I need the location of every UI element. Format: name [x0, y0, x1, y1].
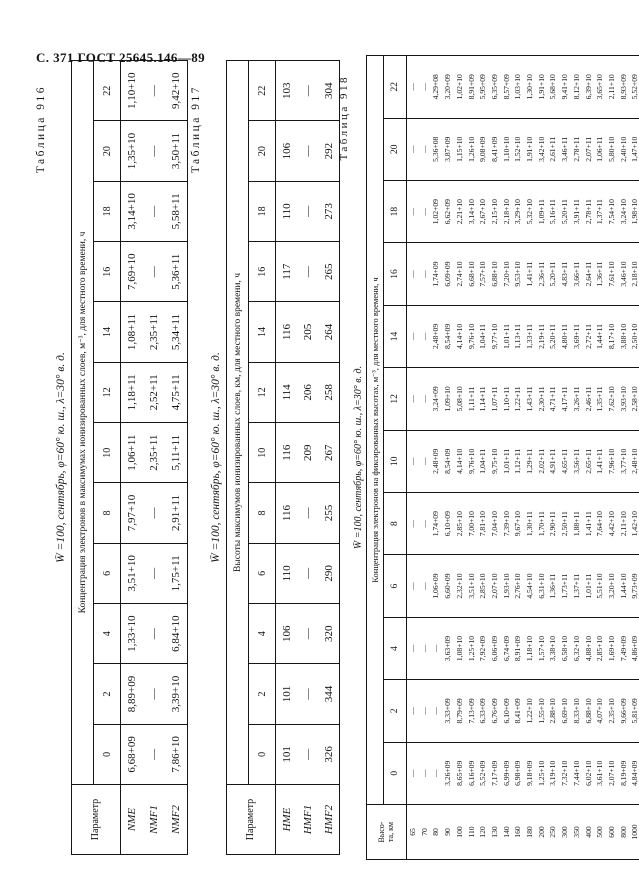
value-cell: —	[419, 617, 431, 679]
value-cell: 3,61+10	[594, 742, 606, 804]
value-cell: 2,30+11	[536, 368, 548, 430]
value-cell: 8,54+09	[442, 430, 454, 492]
value-cell: 6,06+09	[489, 617, 501, 679]
value-cell: 9,67+10	[512, 492, 524, 554]
value-cell: 7,86+10	[165, 724, 188, 784]
time-header-cell: 18	[249, 181, 276, 241]
height-label-cell: 140	[501, 805, 513, 860]
value-cell: —	[407, 56, 419, 119]
value-cell: 9,75+10	[489, 430, 501, 492]
value-cell: 326	[318, 724, 340, 784]
value-cell: 2,58+10	[629, 368, 639, 430]
time-header-cell: 20	[94, 121, 121, 181]
value-cell: —	[143, 121, 165, 181]
value-cell: 1,75+11	[165, 543, 188, 603]
value-cell: 1,22+11	[512, 368, 524, 430]
time-header-cell: 10	[384, 430, 407, 492]
value-cell: 1,37+11	[571, 555, 583, 617]
value-cell: 7,39+10	[501, 492, 513, 554]
value-cell: 3,69+11	[571, 305, 583, 367]
value-cell: 1,13+11	[512, 305, 524, 367]
value-cell: 1,10+11	[501, 368, 513, 430]
value-cell: 5,34+11	[165, 302, 188, 362]
time-header-cell: 6	[249, 543, 276, 603]
value-cell: 2,74+10	[454, 243, 466, 305]
table-row: 1606,98+098,41+098,91+092,76+109,67+101,…	[512, 56, 524, 860]
time-header-cell: 2	[384, 680, 407, 742]
row-label-cell: HME	[276, 785, 298, 855]
value-cell: 205	[297, 302, 318, 362]
time-header-cell: 6	[94, 543, 121, 603]
value-cell: 4,91+11	[547, 430, 559, 492]
table-row: 70————————————	[419, 56, 431, 860]
value-cell: 2,85+10	[594, 617, 606, 679]
value-cell: 6,84+10	[165, 604, 188, 664]
time-header-cell: 20	[384, 118, 407, 180]
value-cell: 1,36+11	[547, 555, 559, 617]
value-cell: 2,78+11	[583, 180, 595, 242]
value-cell: 9,08+09	[477, 118, 489, 180]
value-cell: 2,61+11	[547, 118, 559, 180]
height-label-cell: 130	[489, 805, 501, 860]
row-label-cell: HMF2	[318, 785, 340, 855]
value-cell: 1,30+10	[524, 56, 536, 119]
value-cell: 5,68+10	[547, 56, 559, 119]
value-cell: —	[297, 61, 318, 121]
value-cell: 1,29+11	[524, 430, 536, 492]
table-row: 6002,07+102,35+101,69+103,20+104,42+107,…	[606, 56, 618, 860]
value-cell: 1,74+09	[430, 243, 442, 305]
value-cell: 117	[276, 242, 298, 302]
value-cell: 8,93+09	[618, 56, 630, 119]
value-cell: 3,87+09	[442, 118, 454, 180]
value-cell: 6,99+09	[501, 742, 513, 804]
value-cell: 8,41+09	[489, 118, 501, 180]
table-row: 3507,44+108,33+106,32+101,37+111,88+113,…	[571, 56, 583, 860]
value-cell: 2,18+10	[629, 243, 639, 305]
value-cell: 8,54+09	[442, 305, 454, 367]
table-row: 1106,16+097,13+091,25+103,51+107,00+109,…	[466, 56, 478, 860]
value-cell: 3,66+11	[571, 243, 583, 305]
height-label-cell: 80	[430, 805, 442, 860]
value-cell: 4,83+11	[559, 243, 571, 305]
value-cell: 1,18+11	[121, 362, 144, 422]
value-cell: 8,65+09	[454, 742, 466, 804]
time-header-cell: 8	[94, 483, 121, 543]
time-header-cell: 18	[94, 181, 121, 241]
value-cell: 3,26+09	[442, 742, 454, 804]
height-label-cell: 180	[524, 805, 536, 860]
table-row: NMF27,86+103,39+106,84+101,75+112,91+115…	[165, 61, 188, 855]
value-cell: 1,06+09	[430, 555, 442, 617]
time-header-cell: 12	[249, 362, 276, 422]
value-cell: 1,57+10	[536, 617, 548, 679]
value-cell: 8,79+09	[454, 680, 466, 742]
table-row: HMF1—————209206205————	[297, 61, 318, 855]
height-label-cell: 400	[583, 805, 595, 860]
value-cell: 2,15+10	[489, 180, 501, 242]
value-cell: —	[407, 742, 419, 804]
value-cell: 2,07+10	[606, 742, 618, 804]
value-cell: 9,42+10	[165, 61, 188, 121]
value-cell: —	[143, 604, 165, 664]
value-cell: —	[143, 724, 165, 784]
table-row: HMF2326344320290255267258264265273292304	[318, 61, 340, 855]
value-cell: 1,25+10	[466, 617, 478, 679]
value-cell: 1,35+11	[594, 368, 606, 430]
value-cell: 7,69+10	[121, 242, 144, 302]
value-cell: 5,20+11	[547, 305, 559, 367]
time-header-cell: 16	[94, 242, 121, 302]
value-cell: 2,67+10	[477, 180, 489, 242]
value-cell: 9,41+10	[559, 56, 571, 119]
value-cell: 3,20+09	[442, 56, 454, 119]
value-cell: 2,91+11	[165, 483, 188, 543]
value-cell: —	[297, 724, 318, 784]
time-header-cell: 22	[384, 56, 407, 119]
value-cell: 1,01+11	[501, 305, 513, 367]
value-cell: 2,65+11	[583, 430, 595, 492]
stub-header-cell: Параметр	[227, 785, 276, 855]
value-cell: 5,11+11	[165, 423, 188, 483]
table-caption: Таблица 918	[338, 55, 353, 860]
value-cell: 2,18+10	[501, 180, 513, 242]
value-cell: 1,03+10	[512, 56, 524, 119]
table-row: 2503,19+102,88+103,38+101,36+112,90+114,…	[547, 56, 559, 860]
table-title: W̄ =100, сентябрь, φ=60° ю. ш., λ=30° в.…	[55, 60, 71, 855]
value-cell: 4,80+11	[559, 305, 571, 367]
value-cell: 114	[276, 362, 298, 422]
value-cell: 1,91+10	[536, 56, 548, 119]
value-cell: 2,35+10	[606, 680, 618, 742]
value-cell: 9,66+09	[618, 680, 630, 742]
table-918-band: Таблица 918W̄ =100, сентябрь, φ=60° ю. ш…	[338, 55, 639, 860]
value-cell: 1,01+11	[583, 555, 595, 617]
value-cell: —	[297, 664, 318, 724]
value-cell: 1,36+11	[594, 243, 606, 305]
value-cell: 7,97+10	[121, 483, 144, 543]
height-label-cell: 110	[466, 805, 478, 860]
value-cell: 3,93+10	[618, 368, 630, 430]
value-cell: 1,07+11	[489, 368, 501, 430]
value-cell: —	[407, 368, 419, 430]
value-cell: 4,07+10	[594, 680, 606, 742]
value-cell: 1,12+11	[512, 430, 524, 492]
value-cell: 1,10+10	[501, 118, 513, 180]
time-header-cell: 8	[249, 483, 276, 543]
table-916-band: Таблица 916W̄ =100, сентябрь, φ=60° ю. ш…	[35, 60, 187, 855]
value-cell: 1,09+10	[442, 368, 454, 430]
value-cell: 2,36+11	[536, 243, 548, 305]
value-cell: 7,96+10	[606, 430, 618, 492]
value-cell: 1,22+10	[524, 680, 536, 742]
value-cell: 1,35+10	[121, 121, 144, 181]
value-cell: 258	[318, 362, 340, 422]
value-cell: 1,10+10	[121, 61, 144, 121]
value-cell: 4,88+10	[583, 617, 595, 679]
value-cell: 8,57+09	[501, 56, 513, 119]
time-header-cell: 0	[249, 724, 276, 784]
height-label-cell: 600	[606, 805, 618, 860]
value-cell: 3,38+10	[547, 617, 559, 679]
value-cell: 1,41+11	[583, 492, 595, 554]
table-row: 80———1,06+091,74+092,48+093,24+092,48+09…	[430, 56, 442, 860]
value-cell: 8,41+09	[512, 680, 524, 742]
value-cell: 265	[318, 242, 340, 302]
value-cell: 3,77+10	[618, 430, 630, 492]
value-cell: 6,68+10	[466, 243, 478, 305]
value-cell: 1,91+10	[524, 118, 536, 180]
value-cell: 2,48+09	[430, 305, 442, 367]
value-cell: 5,08+10	[454, 368, 466, 430]
value-cell: 7,49+09	[618, 617, 630, 679]
value-cell: 4,71+11	[547, 368, 559, 430]
value-cell: 1,02+09	[430, 180, 442, 242]
value-cell: 9,77+10	[489, 305, 501, 367]
value-cell: —	[430, 617, 442, 679]
time-header-cell: 14	[249, 302, 276, 362]
value-cell: 6,02+10	[583, 742, 595, 804]
value-cell: —	[419, 680, 431, 742]
value-cell: 2,50+11	[559, 492, 571, 554]
value-cell: 1,25+10	[536, 742, 548, 804]
value-cell: 103	[276, 61, 298, 121]
value-cell: 267	[318, 423, 340, 483]
value-cell: 1,04+11	[477, 305, 489, 367]
value-cell: 6,32+10	[571, 617, 583, 679]
value-cell: 3,51+10	[121, 543, 144, 603]
value-cell: 5,81+09	[629, 680, 639, 742]
value-cell: 3,39+10	[165, 664, 188, 724]
value-cell: 1,14+11	[477, 368, 489, 430]
value-cell: 6,69+10	[559, 680, 571, 742]
value-cell: 2,90+11	[547, 492, 559, 554]
time-header-cell: 2	[94, 664, 121, 724]
height-label-cell: 160	[512, 805, 524, 860]
height-label-cell: 800	[618, 805, 630, 860]
value-cell: 116	[276, 423, 298, 483]
value-cell: 3,29+10	[512, 180, 524, 242]
value-cell: 1,08+10	[454, 617, 466, 679]
value-cell: 1,74+09	[430, 492, 442, 554]
value-cell: 6,39+10	[583, 56, 595, 119]
value-cell: 6,88+10	[583, 680, 595, 742]
value-cell: 4,65+11	[559, 430, 571, 492]
value-cell: 7,57+10	[477, 243, 489, 305]
value-cell: —	[419, 430, 431, 492]
table-caption: Таблица 916	[35, 60, 55, 855]
value-cell: 6,74+09	[501, 617, 513, 679]
value-cell: 1,06+11	[121, 423, 144, 483]
value-cell: 5,20+11	[547, 243, 559, 305]
value-cell: 3,65+10	[594, 56, 606, 119]
height-label-cell: 300	[559, 805, 571, 860]
time-header-cell: 4	[249, 604, 276, 664]
value-cell: 2,48+09	[430, 430, 442, 492]
value-cell: —	[297, 181, 318, 241]
value-cell: 2,88+10	[547, 680, 559, 742]
value-cell: 2,52+11	[143, 362, 165, 422]
value-cell: 1,26+10	[466, 118, 478, 180]
time-header-cell: 14	[384, 305, 407, 367]
value-cell: —	[407, 243, 419, 305]
value-cell: —	[407, 305, 419, 367]
value-cell: —	[297, 121, 318, 181]
value-cell: 101	[276, 724, 298, 784]
time-header-cell: 18	[384, 180, 407, 242]
value-cell: 5,36+08	[430, 118, 442, 180]
value-cell: —	[407, 430, 419, 492]
value-cell: 5,32+10	[524, 180, 536, 242]
value-cell: 110	[276, 543, 298, 603]
value-cell: 6,16+09	[466, 742, 478, 804]
table-title: W̄ =100, сентябрь, φ=60° ю. ш., λ=30° в.…	[210, 60, 226, 855]
row-label-cell: HMF1	[297, 785, 318, 855]
value-cell: 1,30+11	[524, 492, 536, 554]
value-cell: 6,10+09	[442, 492, 454, 554]
value-cell: 4,14+10	[454, 305, 466, 367]
table-row: 8008,19+099,66+097,49+091,44+102,11+103,…	[618, 56, 630, 860]
value-cell: 1,93+10	[501, 555, 513, 617]
value-cell: —	[407, 180, 419, 242]
value-cell: 3,56+11	[571, 430, 583, 492]
value-cell: 2,78+11	[571, 118, 583, 180]
value-cell: 3,51+10	[466, 555, 478, 617]
time-header-cell: 4	[384, 617, 407, 679]
height-label-cell: 90	[442, 805, 454, 860]
value-cell: 4,14+10	[454, 430, 466, 492]
value-cell: 2,35+11	[143, 302, 165, 362]
value-cell: —	[430, 680, 442, 742]
value-cell: —	[419, 492, 431, 554]
value-cell: 1,42+10	[629, 492, 639, 554]
value-cell: 3,46+10	[618, 243, 630, 305]
time-header-cell: 6	[384, 555, 407, 617]
time-header-cell: 16	[249, 242, 276, 302]
time-header-cell: 20	[249, 121, 276, 181]
time-header-cell: 22	[249, 61, 276, 121]
height-label-cell: 65	[407, 805, 419, 860]
value-cell: 110	[276, 181, 298, 241]
value-cell: 2,07+11	[583, 118, 595, 180]
value-cell: 1,09+11	[536, 180, 548, 242]
value-cell: 1,88+11	[571, 492, 583, 554]
value-cell: 2,48+10	[629, 430, 639, 492]
time-header-cell: 2	[249, 664, 276, 724]
value-cell: 1,44+11	[594, 305, 606, 367]
value-cell: 7,04+10	[489, 492, 501, 554]
value-cell: 273	[318, 181, 340, 241]
table-row: HME101101106110116116114116117110106103	[276, 61, 298, 855]
value-cell: —	[143, 181, 165, 241]
table-title: W̄ =100, сентябрь, φ=60° ю. ш., λ=30° в.…	[353, 55, 366, 860]
time-header-cell: 22	[94, 61, 121, 121]
value-cell: 3,20+10	[606, 555, 618, 617]
value-cell: 209	[297, 423, 318, 483]
value-cell: 8,12+10	[571, 56, 583, 119]
table-row: 65————————————	[407, 56, 419, 860]
value-cell: —	[430, 742, 442, 804]
value-cell: 1,47+10	[629, 118, 639, 180]
height-label-cell: 500	[594, 805, 606, 860]
value-cell: 6,60+09	[442, 555, 454, 617]
value-cell: 7,81+10	[477, 492, 489, 554]
value-cell: 6,98+09	[512, 742, 524, 804]
value-cell: 8,19+09	[618, 742, 630, 804]
value-cell: 6,10+09	[501, 680, 513, 742]
value-cell: —	[297, 242, 318, 302]
value-cell: 2,21+10	[454, 180, 466, 242]
value-cell: —	[143, 61, 165, 121]
value-cell: 6,88+10	[489, 243, 501, 305]
value-cell: 8,91+09	[512, 617, 524, 679]
value-cell: 106	[276, 121, 298, 181]
table-row: 10004,84+095,81+094,86+099,73+091,42+102…	[629, 56, 639, 860]
value-cell: —	[407, 617, 419, 679]
time-header-cell: 8	[384, 492, 407, 554]
time-header-cell: 10	[249, 423, 276, 483]
value-cell: —	[407, 680, 419, 742]
value-cell: 5,36+11	[165, 242, 188, 302]
value-cell: 2,11+10	[618, 492, 630, 554]
table-917-band: Таблица 917W̄ =100, сентябрь, φ=60° ю. ш…	[190, 60, 336, 855]
table-caption: Таблица 917	[190, 60, 210, 855]
height-label-cell: 100	[454, 805, 466, 860]
value-cell: 6,76+09	[489, 680, 501, 742]
value-cell: 2,07+10	[489, 555, 501, 617]
value-cell: 4,54+10	[524, 555, 536, 617]
value-cell: 344	[318, 664, 340, 724]
value-cell: 5,80+10	[606, 118, 618, 180]
table-row: 1008,65+098,79+091,08+102,32+102,85+104,…	[454, 56, 466, 860]
value-cell: 7,61+10	[606, 243, 618, 305]
value-cell: 3,14+10	[466, 180, 478, 242]
value-cell: 320	[318, 604, 340, 664]
value-cell: 4,29+08	[430, 56, 442, 119]
value-cell: 6,31+10	[536, 555, 548, 617]
value-cell: 1,41+11	[594, 430, 606, 492]
height-label-cell: 1000	[629, 805, 639, 860]
value-cell: 2,76+10	[512, 555, 524, 617]
time-header-cell: 16	[384, 243, 407, 305]
value-cell: 3,63+09	[442, 617, 454, 679]
value-cell: 7,17+09	[489, 742, 501, 804]
value-cell: —	[419, 555, 431, 617]
value-cell: 255	[318, 483, 340, 543]
value-cell: 6,35+09	[489, 56, 501, 119]
value-cell: 9,18+09	[524, 742, 536, 804]
value-cell: 6,68+09	[121, 724, 144, 784]
document-page: С. 371 ГОСТ 25645.146—89 Таблица 916W̄ =…	[0, 0, 639, 875]
table-row: 2001,25+101,55+101,57+106,31+101,70+112,…	[536, 56, 548, 860]
data-table: Высо- та, кмКонцентрация электронов на ф…	[366, 55, 639, 860]
value-cell: 2,19+11	[536, 305, 548, 367]
value-cell: 1,70+11	[536, 492, 548, 554]
value-cell: —	[419, 742, 431, 804]
value-cell: 3,42+10	[536, 118, 548, 180]
value-cell: 8,33+10	[571, 680, 583, 742]
value-cell: 5,52+09	[629, 56, 639, 119]
value-cell: —	[407, 555, 419, 617]
value-cell: 2,32+10	[454, 555, 466, 617]
value-cell: 8,17+10	[606, 305, 618, 367]
value-cell: 2,46+11	[583, 368, 595, 430]
value-cell: 1,52+10	[512, 118, 524, 180]
value-cell: 264	[318, 302, 340, 362]
value-cell: 2,85+10	[454, 492, 466, 554]
value-cell: 7,00+10	[466, 492, 478, 554]
value-cell: 3,24+10	[618, 180, 630, 242]
